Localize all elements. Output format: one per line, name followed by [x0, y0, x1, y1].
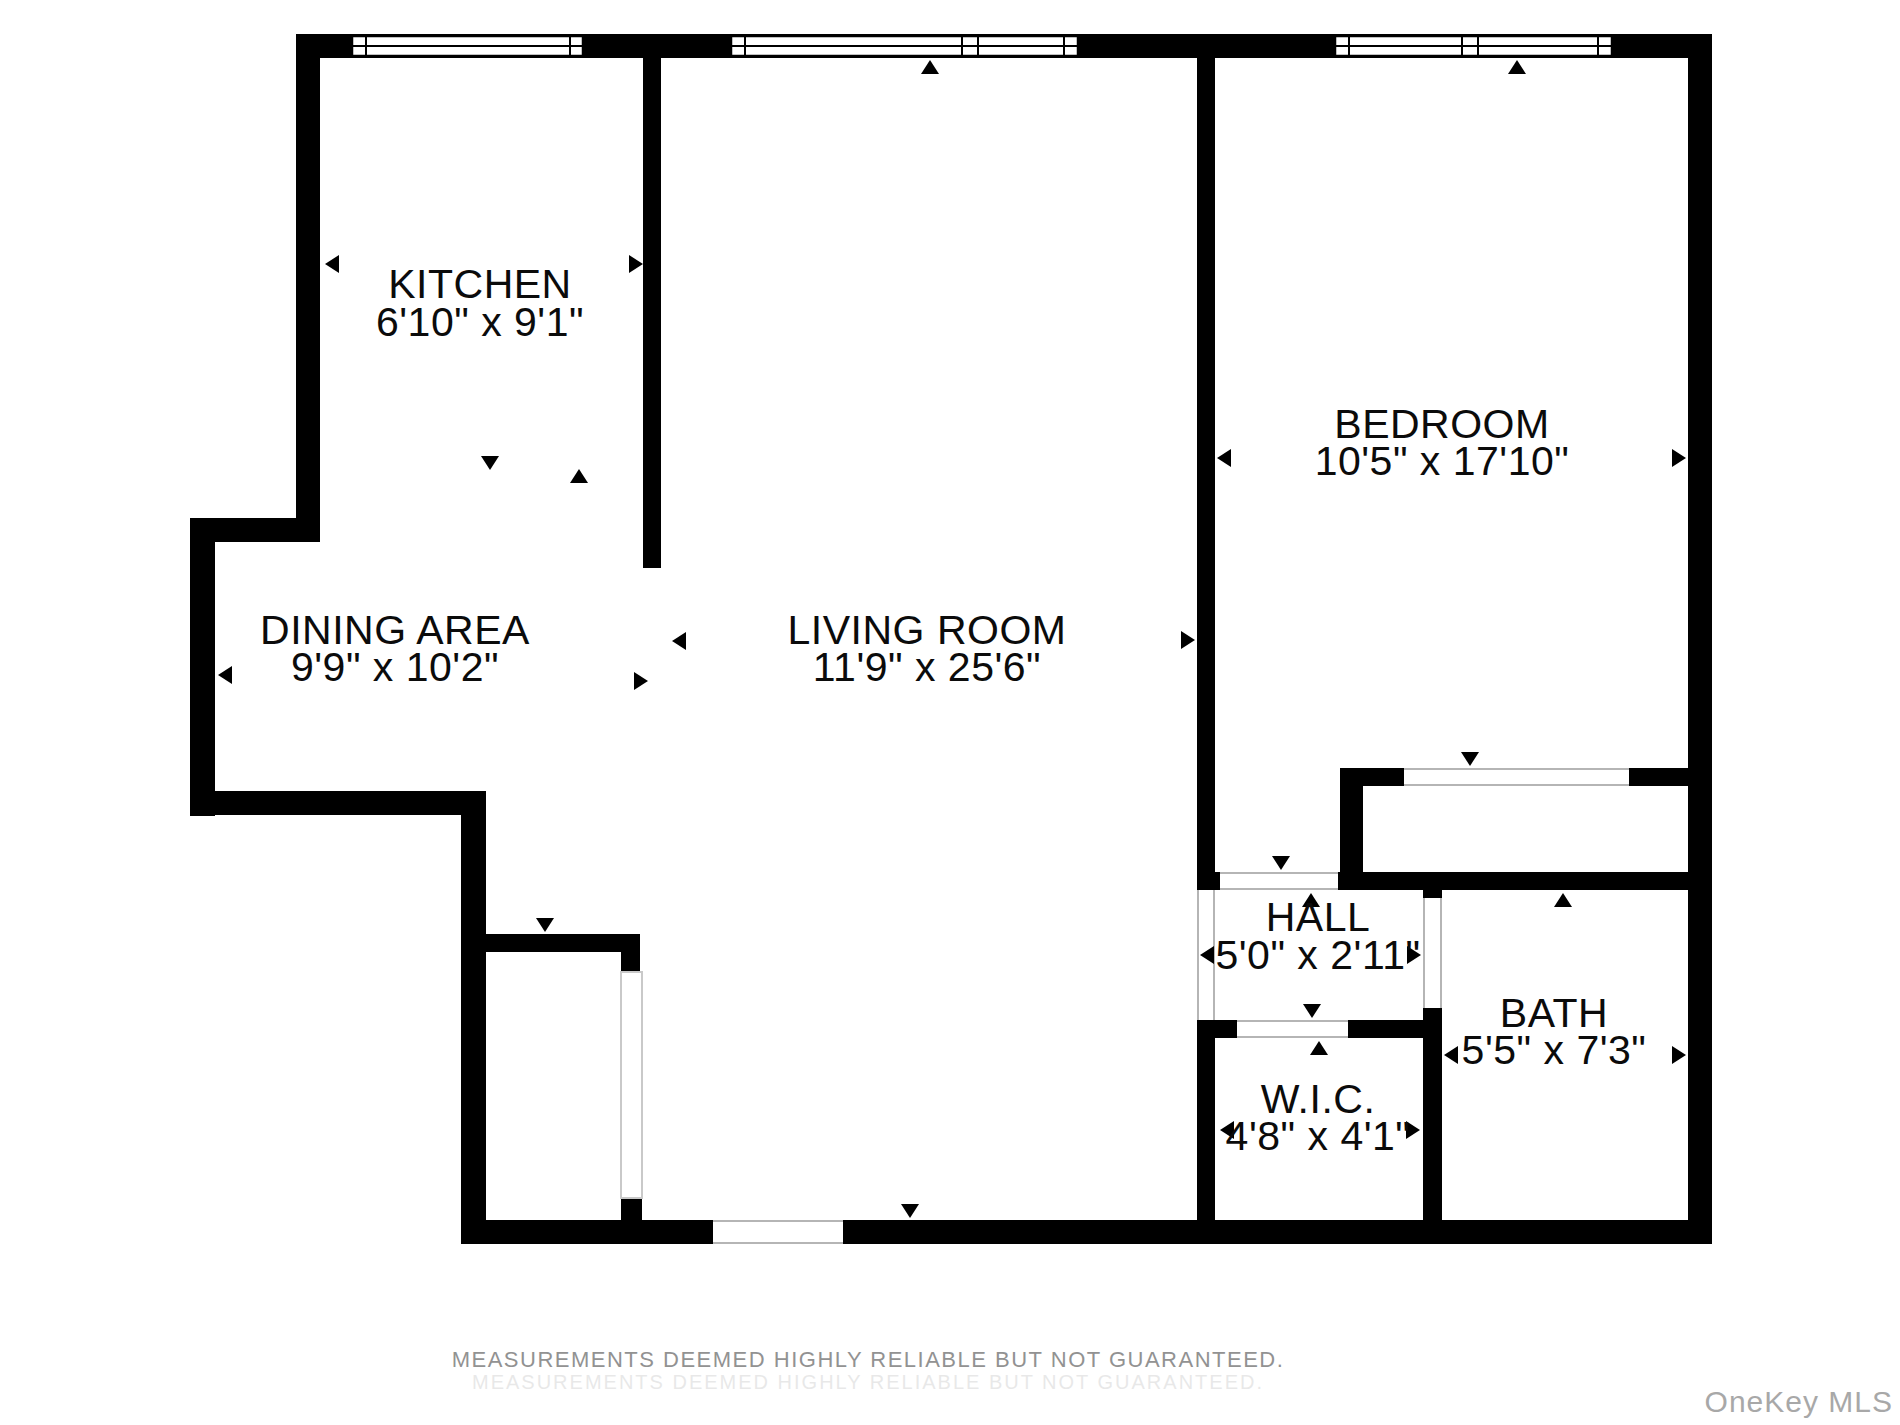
dimension-arrow-u — [570, 469, 588, 483]
dimension-arrow-u — [1508, 60, 1526, 74]
wall-wic-left — [1197, 1020, 1215, 1244]
bath-dimensions: 5'5" x 7'3" — [1462, 1027, 1647, 1073]
footer-faint-line: MEASUREMENTS DEEMED HIGHLY RELIABLE BUT … — [472, 1371, 1264, 1393]
wall-entry-closet-stub-bottom — [621, 1198, 642, 1220]
bath-door-opening — [1423, 898, 1442, 1008]
wall-kitchen-divider — [643, 58, 661, 568]
dimension-arrow-l — [218, 666, 232, 684]
bedroom-closet-slider-opening — [1404, 768, 1629, 786]
dimension-arrow-l — [325, 255, 339, 273]
dimension-arrow-r — [1181, 631, 1195, 649]
footer: MEASUREMENTS DEEMED HIGHLY RELIABLE BUT … — [452, 1347, 1893, 1418]
dimension-arrow-l — [1200, 946, 1214, 964]
dimension-arrow-d — [536, 918, 554, 932]
bedroom-dimensions: 10'5" x 17'10" — [1315, 438, 1570, 484]
dining-area-dimensions: 9'9" x 10'2" — [291, 644, 499, 690]
wall-dining-bottom — [190, 791, 486, 815]
dimension-arrow-d — [1272, 856, 1290, 870]
dimension-arrow-r — [634, 672, 648, 690]
dimension-arrow-r — [1672, 449, 1686, 467]
entry-closet-door-strip — [621, 972, 642, 1198]
dimension-arrow-l — [672, 632, 686, 650]
dimension-arrow-u — [1310, 1041, 1328, 1055]
floor-plan-drawing: KITCHEN 6'10" x 9'1" DINING AREA 9'9" x … — [0, 0, 1900, 1425]
wall-bedroom-divider — [1197, 58, 1215, 890]
wall-left-upper — [296, 34, 320, 542]
living-room-window — [731, 36, 1078, 56]
kitchen-window — [352, 36, 583, 56]
dimension-arrow-d — [481, 456, 499, 470]
wall-entry-side — [461, 791, 486, 1244]
bedroom-window — [1335, 36, 1612, 56]
living-room-dimensions: 11'9" x 25'6" — [813, 644, 1041, 690]
wall-closet-stub-right — [1629, 768, 1688, 786]
kitchen-dimensions: 6'10" x 9'1" — [376, 299, 584, 345]
openings — [621, 768, 1629, 1244]
dimension-arrow-d — [901, 1204, 919, 1218]
dimension-arrow-r — [1672, 1046, 1686, 1064]
dimension-arrow-d — [1303, 1004, 1321, 1018]
wic-door-opening — [1237, 1020, 1348, 1038]
footer-disclaimer: MEASUREMENTS DEEMED HIGHLY RELIABLE BUT … — [452, 1347, 1285, 1372]
wall-bedroom-closet-left — [1340, 768, 1363, 890]
windows — [352, 36, 1612, 56]
wall-left-lower — [190, 518, 215, 816]
wall-right — [1688, 34, 1712, 1244]
entry-door-opening — [713, 1220, 843, 1244]
wall-closet-stub-left — [1340, 768, 1404, 786]
bedroom-door-opening — [1220, 872, 1338, 890]
hall-dimensions: 5'0" x 2'11" — [1215, 932, 1420, 978]
wic-dimensions: 4'8" x 4'1" — [1226, 1113, 1411, 1159]
dimension-arrow-u — [921, 60, 939, 74]
wall-entry-closet-stub-top — [621, 952, 640, 972]
wall-entry-closet-top — [485, 934, 640, 952]
mls-watermark: OneKey MLS — [1705, 1385, 1893, 1418]
dimension-arrow-l — [1444, 1046, 1458, 1064]
dimension-arrow-r — [629, 255, 643, 273]
dimension-arrow-u — [1554, 893, 1572, 907]
wall-bottom — [461, 1220, 1712, 1244]
dimension-arrow-d — [1461, 752, 1479, 766]
floor-plan-page: KITCHEN 6'10" x 9'1" DINING AREA 9'9" x … — [0, 0, 1900, 1425]
dimension-arrow-l — [1217, 449, 1231, 467]
